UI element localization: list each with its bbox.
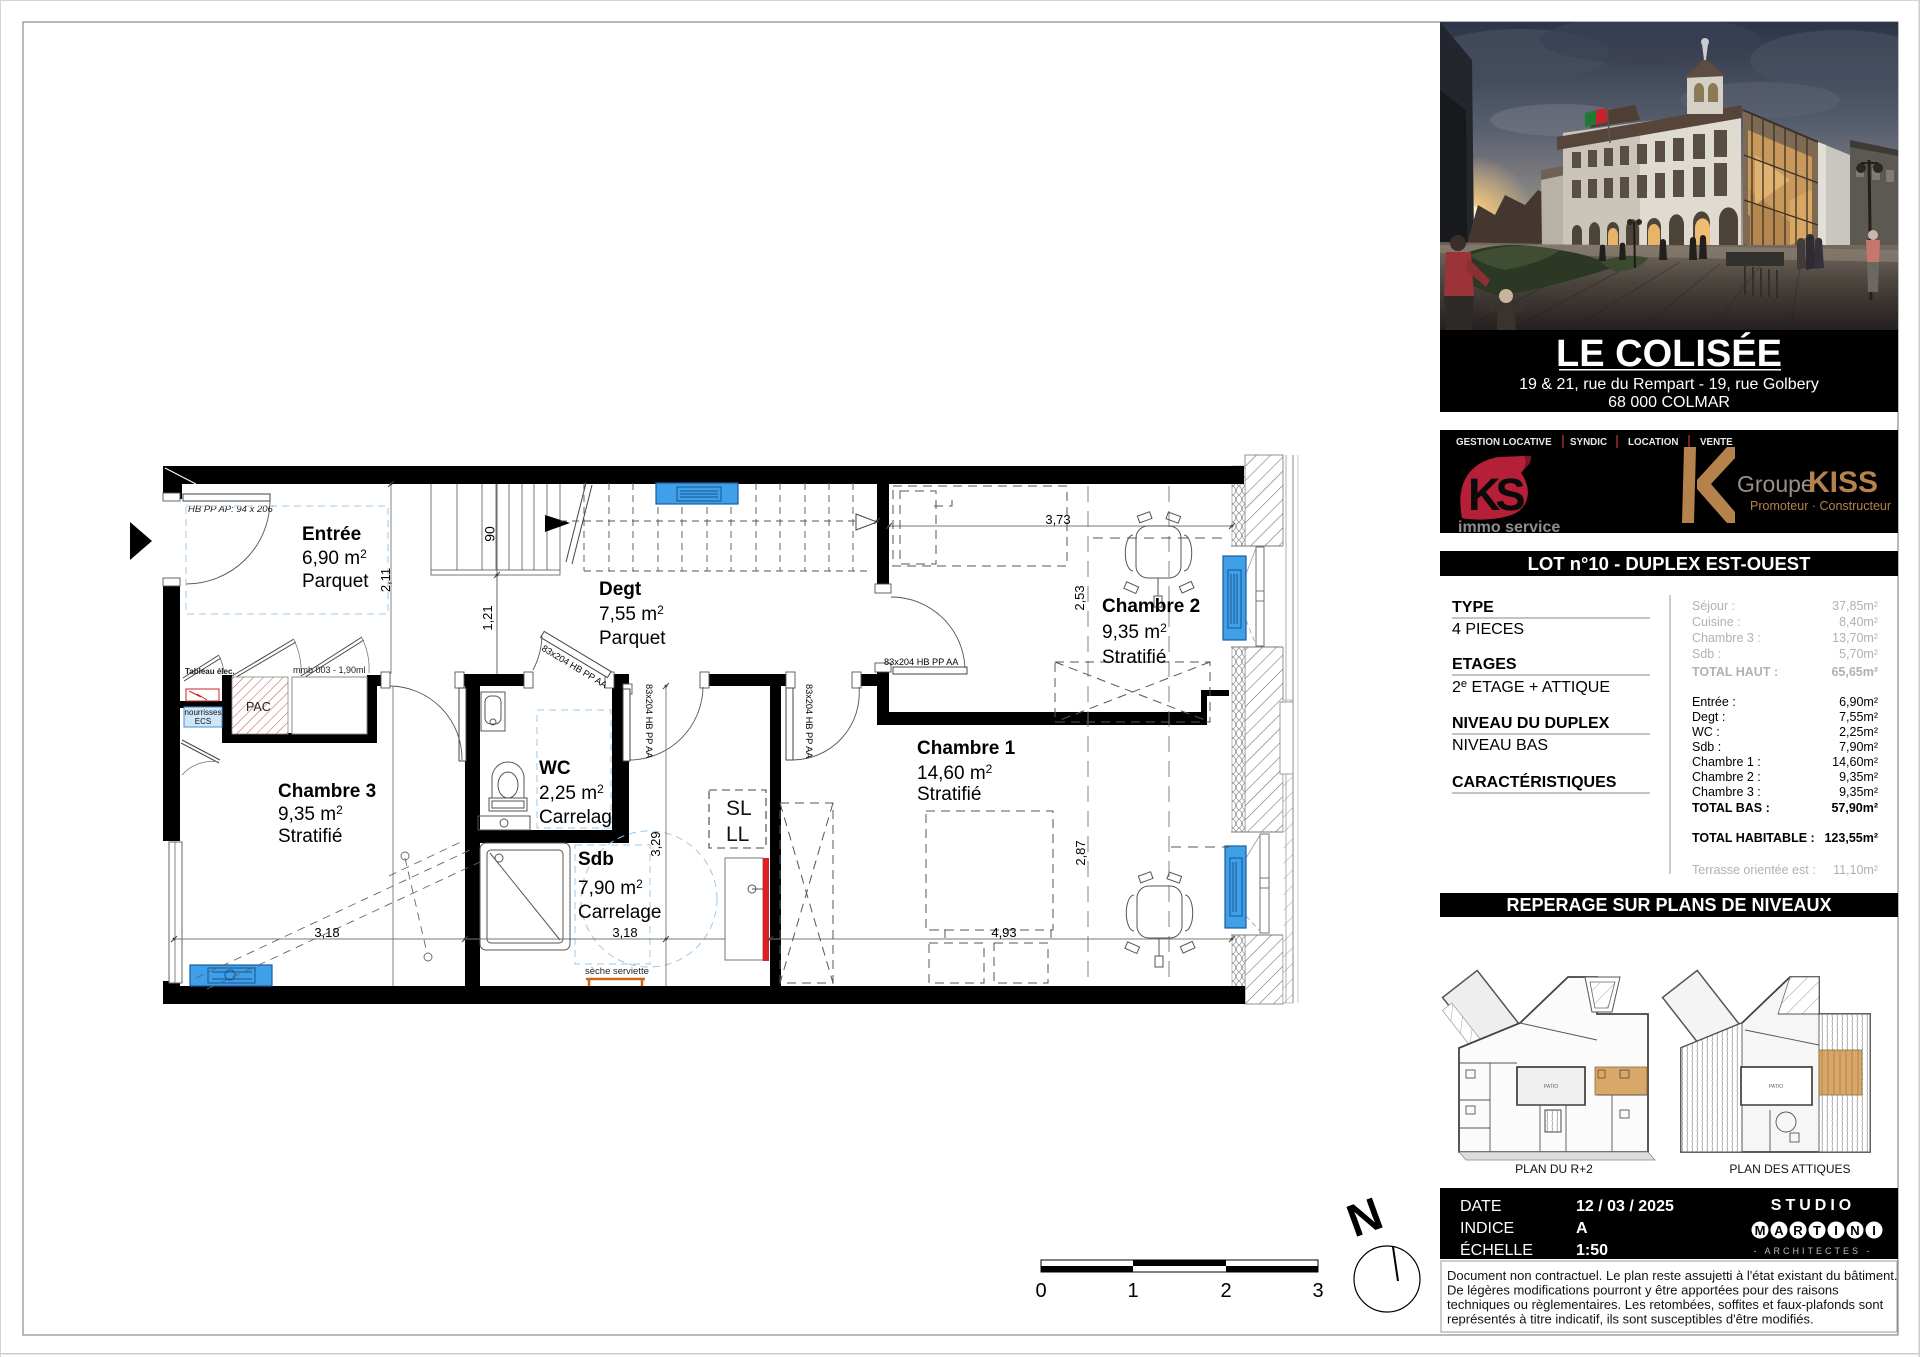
svg-text:Sdb :: Sdb : xyxy=(1692,647,1721,661)
svg-text:Entrée :: Entrée : xyxy=(1692,695,1736,709)
svg-text:2,87: 2,87 xyxy=(1073,840,1088,865)
svg-text:PLAN DU R+2: PLAN DU R+2 xyxy=(1515,1162,1593,1176)
svg-text:ÉCHELLE: ÉCHELLE xyxy=(1460,1240,1533,1259)
svg-text:techniques ou règlementaires.: techniques ou règlementaires. Les retomb… xyxy=(1447,1297,1884,1312)
svg-text:83x204 HB PP AA: 83x204 HB PP AA xyxy=(804,684,814,759)
svg-text:Chambre 2: Chambre 2 xyxy=(1102,596,1200,617)
svg-text:11,10m²: 11,10m² xyxy=(1833,863,1878,877)
svg-text:7,90m²: 7,90m² xyxy=(1839,740,1878,754)
svg-text:9,35 m2: 9,35 m2 xyxy=(1102,621,1167,643)
svg-text:De légères modifications pourr: De légères modifications pourront y être… xyxy=(1447,1283,1839,1298)
svg-text:M: M xyxy=(1755,1223,1766,1238)
svg-text:SYNDIC: SYNDIC xyxy=(1570,437,1607,448)
svg-text:14,60 m2: 14,60 m2 xyxy=(917,762,993,784)
svg-text:3,29: 3,29 xyxy=(648,831,663,856)
svg-text:7,55m²: 7,55m² xyxy=(1839,710,1878,724)
svg-text:9,35m²: 9,35m² xyxy=(1839,785,1878,799)
svg-text:Parquet: Parquet xyxy=(302,571,369,592)
svg-text:Chambre 1: Chambre 1 xyxy=(917,738,1016,759)
svg-text:CARACTÉRISTIQUES: CARACTÉRISTIQUES xyxy=(1452,772,1617,791)
svg-text:2,53: 2,53 xyxy=(1072,585,1087,610)
svg-text:Stratifié: Stratifié xyxy=(278,826,342,847)
svg-text:DATE: DATE xyxy=(1460,1198,1501,1215)
svg-text:Séjour :: Séjour : xyxy=(1692,599,1735,613)
svg-text:3,18: 3,18 xyxy=(314,925,339,940)
svg-text:1: 1 xyxy=(1127,1280,1138,1302)
svg-text:Entrée: Entrée xyxy=(302,524,361,545)
svg-text:N: N xyxy=(1850,1223,1859,1238)
svg-text:2,11: 2,11 xyxy=(378,568,393,592)
svg-text:Carrelage: Carrelage xyxy=(578,902,661,923)
svg-text:immo service: immo service xyxy=(1458,519,1560,536)
svg-text:Chambre 3 :: Chambre 3 : xyxy=(1692,785,1761,799)
svg-text:1:50: 1:50 xyxy=(1576,1242,1608,1259)
svg-text:PATIO: PATIO xyxy=(1544,1084,1558,1090)
svg-text:9,35m²: 9,35m² xyxy=(1839,770,1878,784)
svg-text:Promoteur · Constructeur: Promoteur · Constructeur xyxy=(1750,499,1891,513)
svg-text:GESTION LOCATIVE: GESTION LOCATIVE xyxy=(1456,437,1552,448)
svg-text:Document non contractuel. Le p: Document non contractuel. Le plan reste … xyxy=(1447,1268,1898,1283)
svg-text:Chambre 3: Chambre 3 xyxy=(278,781,376,802)
svg-text:I: I xyxy=(1834,1223,1838,1238)
svg-text:5,70m²: 5,70m² xyxy=(1839,647,1878,661)
svg-text:SL: SL xyxy=(726,797,752,820)
svg-text:PAC: PAC xyxy=(246,700,271,714)
svg-text:TOTAL HABITABLE :: TOTAL HABITABLE : xyxy=(1692,831,1815,845)
svg-text:- ARCHITECTES -: - ARCHITECTES - xyxy=(1753,1246,1872,1256)
svg-text:65,65m²: 65,65m² xyxy=(1831,665,1878,679)
svg-text:2: 2 xyxy=(1220,1280,1231,1302)
svg-text:représentés à titre indicatif,: représentés à titre indicatif, ils sont … xyxy=(1447,1312,1814,1327)
svg-text:7,90 m2: 7,90 m2 xyxy=(578,877,643,899)
svg-text:mmb 003 - 1,90ml: mmb 003 - 1,90ml xyxy=(293,665,366,675)
svg-text:Stratifié: Stratifié xyxy=(917,784,981,805)
svg-text:Sdb: Sdb xyxy=(578,849,614,870)
svg-text:R: R xyxy=(1793,1223,1803,1238)
svg-text:T: T xyxy=(1813,1223,1821,1238)
svg-text:37,85m²: 37,85m² xyxy=(1832,599,1878,613)
svg-text:Chambre 1 :: Chambre 1 : xyxy=(1692,755,1761,769)
svg-text:PATIO: PATIO xyxy=(1769,1084,1783,1090)
svg-text:83x204 HB PP AA: 83x204 HB PP AA xyxy=(644,684,654,759)
svg-text:83x204 HB PP AA: 83x204 HB PP AA xyxy=(884,657,959,667)
svg-text:68 000 COLMAR: 68 000 COLMAR xyxy=(1608,394,1730,411)
svg-text:TOTAL HAUT :: TOTAL HAUT : xyxy=(1692,665,1778,679)
svg-text:PLAN DES ATTIQUES: PLAN DES ATTIQUES xyxy=(1729,1162,1850,1176)
svg-text:ECS: ECS xyxy=(195,717,211,726)
svg-text:3,18: 3,18 xyxy=(612,925,637,940)
svg-text:WC: WC xyxy=(539,758,571,779)
svg-text:9,35 m2: 9,35 m2 xyxy=(278,803,343,825)
svg-text:7,55 m2: 7,55 m2 xyxy=(599,603,664,625)
svg-text:NIVEAU DU DUPLEX: NIVEAU DU DUPLEX xyxy=(1452,715,1610,732)
svg-text:INDICE: INDICE xyxy=(1460,1220,1514,1237)
svg-text:KS: KS xyxy=(1468,469,1524,520)
svg-text:A: A xyxy=(1774,1223,1784,1238)
svg-text:NIVEAU BAS: NIVEAU BAS xyxy=(1452,737,1548,754)
svg-text:13,70m²: 13,70m² xyxy=(1832,631,1878,645)
svg-text:6,90m²: 6,90m² xyxy=(1839,695,1878,709)
svg-text:Cuisine :: Cuisine : xyxy=(1692,615,1741,629)
svg-text:0: 0 xyxy=(1035,1280,1046,1302)
svg-text:nourrisses: nourrisses xyxy=(185,708,222,717)
svg-text:KISS: KISS xyxy=(1808,466,1878,499)
svg-text:Tableau élec.: Tableau élec. xyxy=(185,667,235,676)
svg-text:3: 3 xyxy=(1312,1280,1323,1302)
svg-text:Sdb :: Sdb : xyxy=(1692,740,1721,754)
svg-text:TOTAL BAS :: TOTAL BAS : xyxy=(1692,801,1770,815)
svg-text:LOT n°10 - DUPLEX EST-OUEST: LOT n°10 - DUPLEX EST-OUEST xyxy=(1528,553,1812,574)
svg-text:Degt :: Degt : xyxy=(1692,710,1725,724)
svg-text:LOCATION: LOCATION xyxy=(1628,437,1678,448)
svg-text:A: A xyxy=(1576,1220,1588,1237)
svg-text:6,90 m2: 6,90 m2 xyxy=(302,547,367,569)
svg-text:I: I xyxy=(1872,1223,1876,1238)
svg-text:12 / 03 / 2025: 12 / 03 / 2025 xyxy=(1576,1198,1674,1215)
svg-text:1,21: 1,21 xyxy=(480,605,495,630)
svg-text:REPERAGE SUR PLANS DE NIVEAUX: REPERAGE SUR PLANS DE NIVEAUX xyxy=(1506,895,1831,915)
svg-text:2,25 m2: 2,25 m2 xyxy=(539,782,604,804)
svg-text:Terrasse orientée est :: Terrasse orientée est : xyxy=(1692,863,1816,877)
svg-text:sèche serviette: sèche serviette xyxy=(585,966,649,977)
svg-text:Groupe: Groupe xyxy=(1737,471,1814,497)
svg-text:VENTE: VENTE xyxy=(1700,437,1733,448)
svg-text:90: 90 xyxy=(482,526,498,542)
svg-text:LL: LL xyxy=(726,823,749,846)
svg-text:8,40m²: 8,40m² xyxy=(1839,615,1878,629)
svg-text:TYPE: TYPE xyxy=(1452,599,1494,616)
svg-text:Chambre 3 :: Chambre 3 : xyxy=(1692,631,1761,645)
svg-text:4 PIECES: 4 PIECES xyxy=(1452,621,1524,638)
svg-text:123,55m²: 123,55m² xyxy=(1824,831,1878,845)
svg-text:Parquet: Parquet xyxy=(599,628,666,649)
svg-text:57,90m²: 57,90m² xyxy=(1831,801,1878,815)
svg-text:19 & 21, rue du Rempart - 19,: 19 & 21, rue du Rempart - 19, rue Golber… xyxy=(1519,376,1819,393)
svg-text:STUDIO: STUDIO xyxy=(1771,1197,1855,1214)
svg-text:4,93: 4,93 xyxy=(991,925,1016,940)
svg-text:LE COLISÉE: LE COLISÉE xyxy=(1556,331,1782,375)
svg-text:WC :: WC : xyxy=(1692,725,1720,739)
svg-text:Degt: Degt xyxy=(599,579,642,600)
svg-text:2,25m²: 2,25m² xyxy=(1839,725,1878,739)
svg-text:14,60m²: 14,60m² xyxy=(1832,755,1878,769)
svg-text:ETAGES: ETAGES xyxy=(1452,656,1517,673)
svg-text:Chambre 2 :: Chambre 2 : xyxy=(1692,770,1761,784)
svg-text:2e ETAGE + ATTIQUE: 2e ETAGE + ATTIQUE xyxy=(1452,678,1610,696)
svg-text:Carrelage: Carrelage xyxy=(539,807,622,828)
svg-text:Stratifié: Stratifié xyxy=(1102,647,1166,668)
svg-text:3,73: 3,73 xyxy=(1045,512,1070,527)
